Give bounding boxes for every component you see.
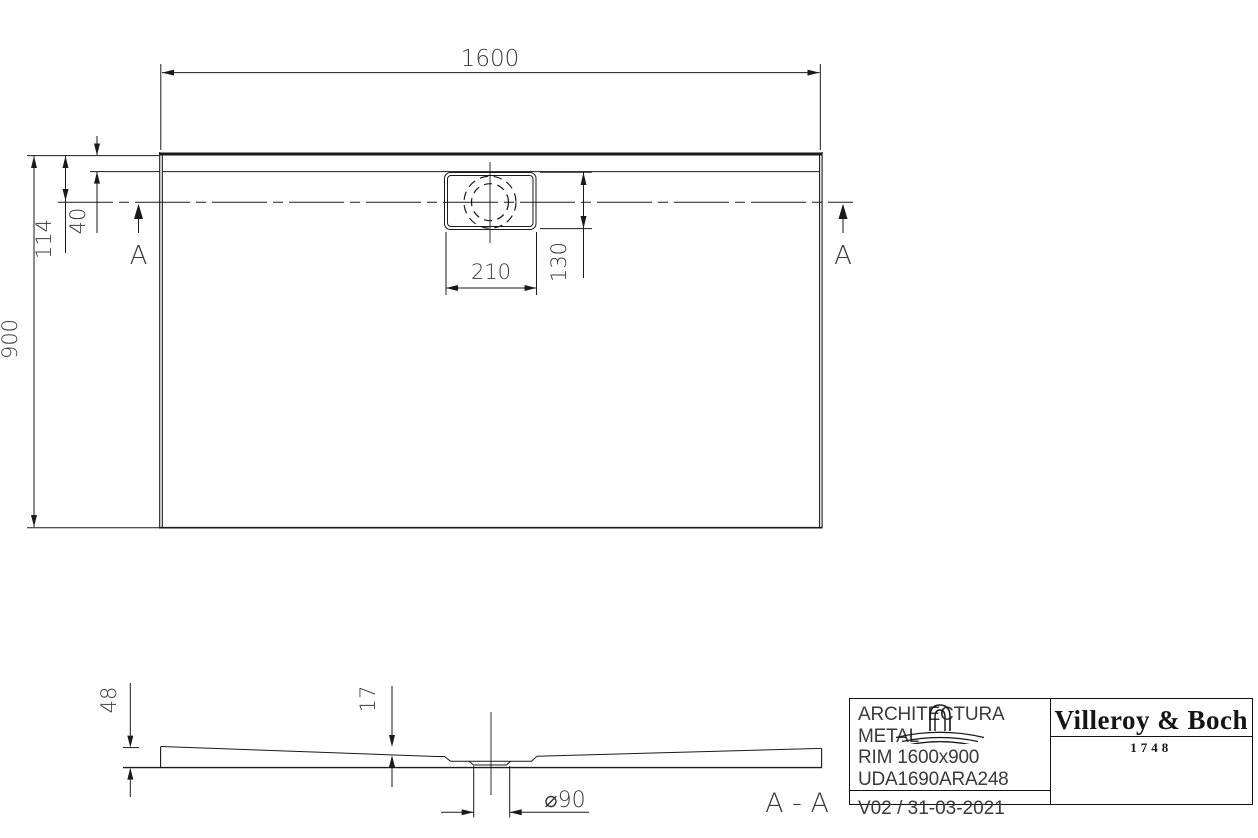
faucet-ripples-icon bbox=[850, 699, 1030, 744]
product-type: RIM 1600x900 bbox=[858, 747, 1050, 769]
dim-210: 210 bbox=[446, 232, 537, 295]
section-profile bbox=[123, 712, 822, 795]
dim-drain-diameter: ⌀90 bbox=[441, 766, 589, 818]
dim-48: 48 bbox=[97, 683, 139, 797]
drain-plug bbox=[469, 761, 511, 765]
drawing-canvas: 1600 900 114 40 bbox=[0, 0, 1258, 838]
brand-year: 1748 bbox=[1130, 740, 1172, 756]
title-block: ARCHITECTURA METAL RIM 1600x900 UDA1690A… bbox=[849, 698, 1253, 805]
dim-900-label: 900 bbox=[0, 319, 22, 359]
dim-40-label: 40 bbox=[66, 208, 90, 235]
dim-1600-label: 1600 bbox=[461, 46, 520, 72]
dim-130-label: 130 bbox=[547, 242, 571, 282]
section-marker-left: A bbox=[130, 204, 148, 271]
section-view: 48 17 ⌀90 A - A bbox=[97, 683, 829, 819]
dim-210-label: 210 bbox=[471, 260, 511, 284]
plan-view: 1600 900 114 40 bbox=[0, 46, 853, 528]
article-number: UDA1690ARA248 bbox=[858, 769, 1050, 791]
plan-tray-outline bbox=[159, 152, 823, 528]
brand-name: Villeroy & Boch bbox=[1051, 707, 1252, 737]
brand-cell: Villeroy & Boch 1748 bbox=[1051, 699, 1252, 804]
dim-40: 40 bbox=[66, 136, 160, 234]
version-date: V02 / 31-03-2021 bbox=[850, 790, 1050, 820]
dim-114: 114 bbox=[32, 156, 69, 259]
section-marker-left-label: A bbox=[130, 241, 148, 271]
section-marker-right-label: A bbox=[834, 241, 852, 271]
dim-1600: 1600 bbox=[161, 46, 821, 150]
dim-114-label: 114 bbox=[32, 219, 56, 259]
dim-17: 17 bbox=[356, 686, 395, 787]
dim-17-label: 17 bbox=[356, 686, 380, 713]
section-marker-right: A bbox=[834, 204, 852, 271]
dim-drain-diameter-label: ⌀90 bbox=[544, 788, 585, 813]
dim-48-label: 48 bbox=[97, 687, 121, 714]
section-title: A - A bbox=[765, 788, 829, 819]
dim-130: 130 bbox=[540, 172, 592, 282]
